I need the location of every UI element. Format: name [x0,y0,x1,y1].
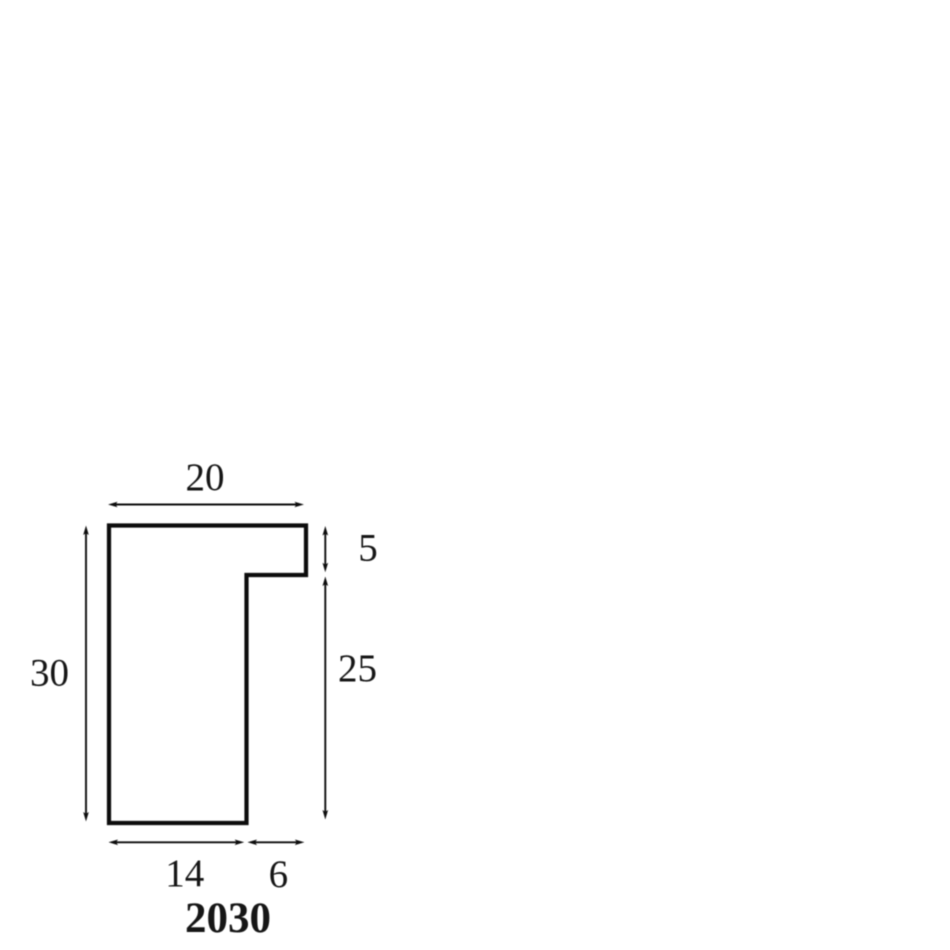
svg-text:6: 6 [269,853,289,896]
svg-text:20: 20 [186,456,225,499]
svg-text:14: 14 [165,852,204,895]
svg-text:30: 30 [30,652,69,695]
svg-text:2030: 2030 [185,895,271,942]
svg-text:25: 25 [338,647,377,690]
svg-text:5: 5 [358,527,378,570]
